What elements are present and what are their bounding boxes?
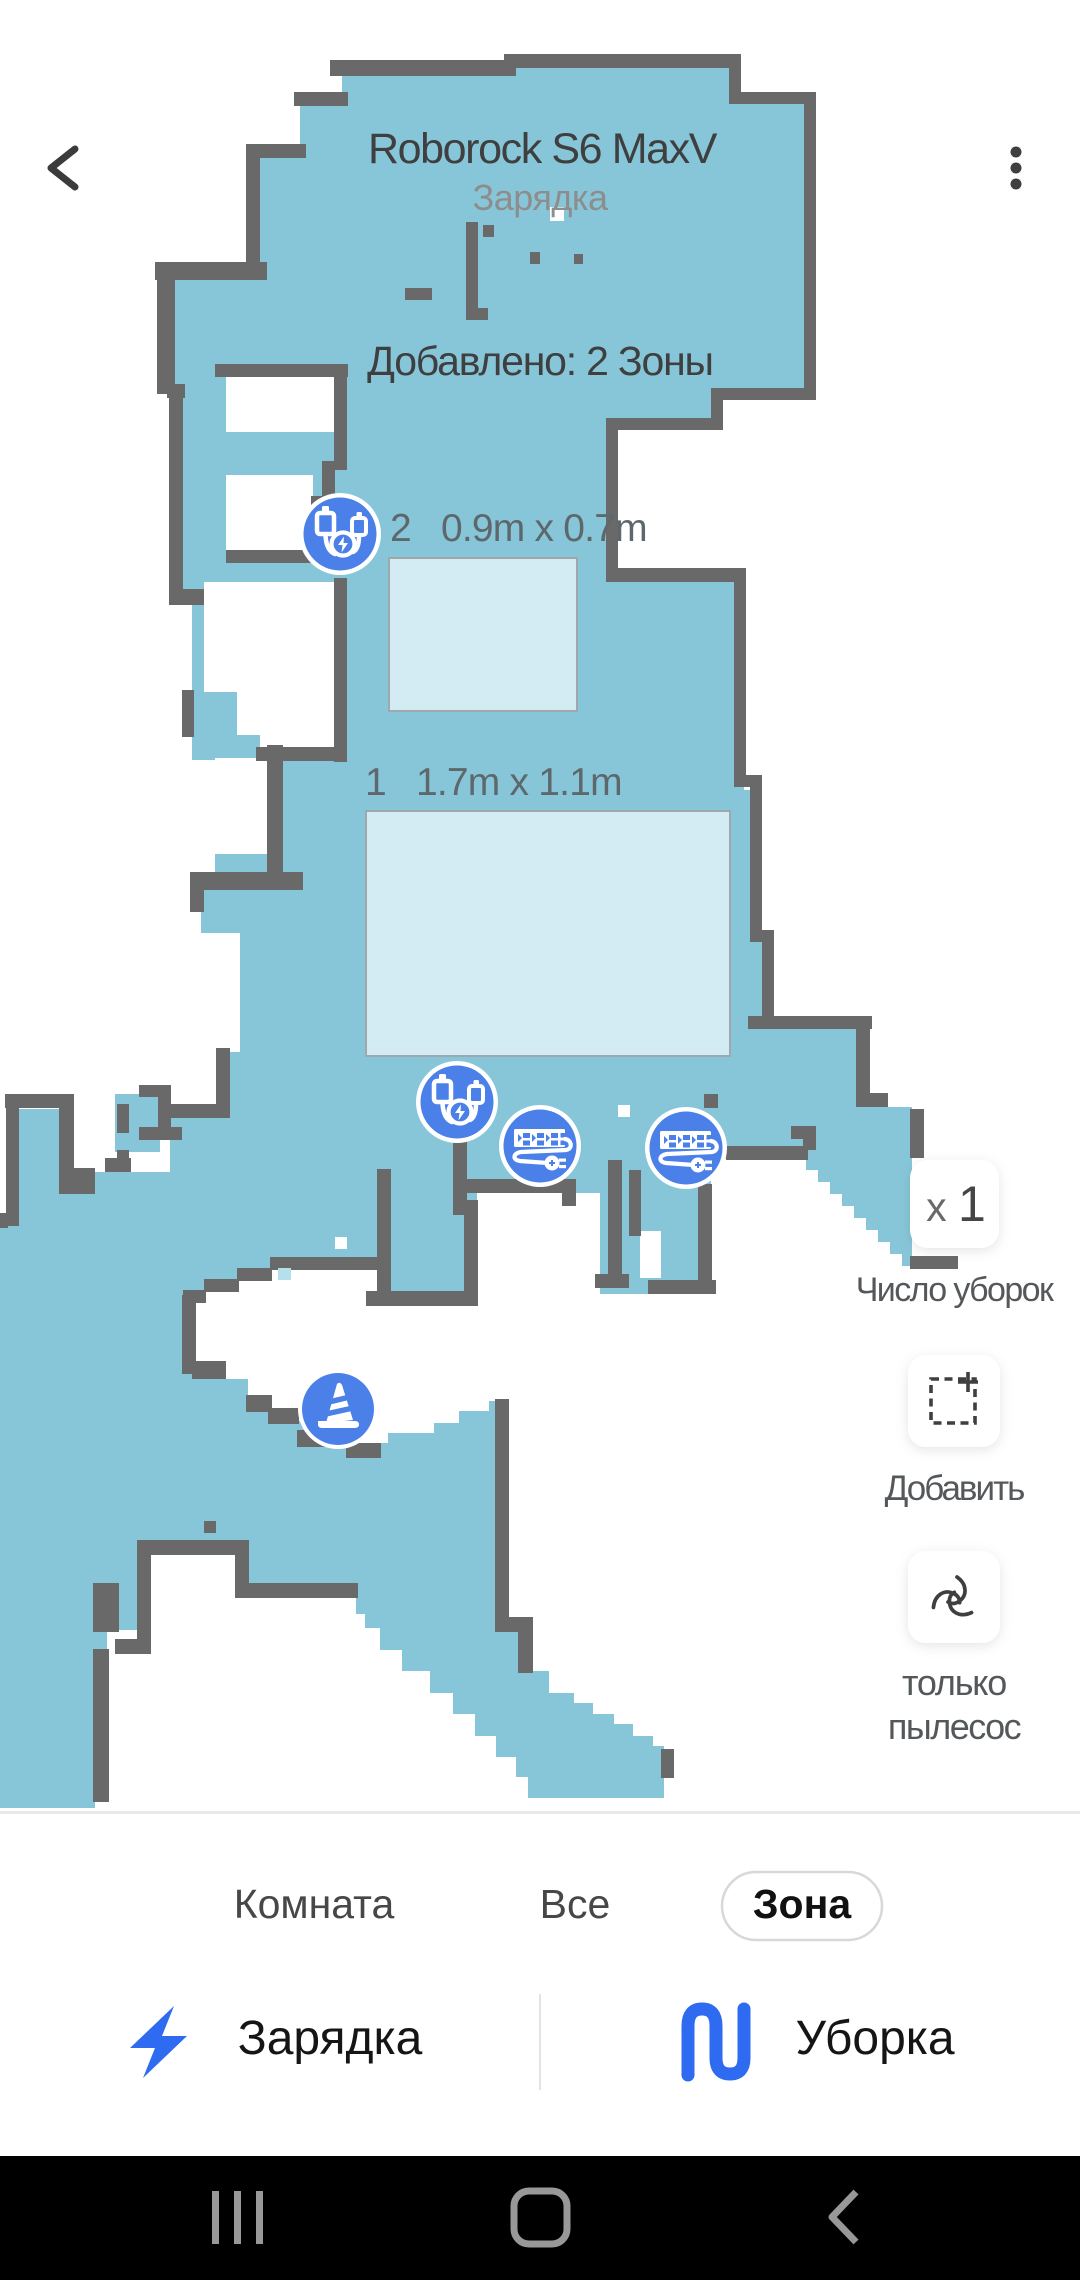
- svg-text:Добавлено: 2 Зоны: Добавлено: 2 Зоны: [367, 338, 713, 384]
- svg-text:Roborock S6 MaxV: Roborock S6 MaxV: [368, 125, 718, 173]
- svg-text:Зона: Зона: [753, 1881, 852, 1927]
- svg-text:1 1.7m x 1.1m: 1 1.7m x 1.1m: [365, 761, 622, 804]
- svg-text:Все: Все: [540, 1881, 611, 1927]
- svg-text:Зарядка: Зарядка: [473, 177, 609, 218]
- svg-text:х 1: х 1: [926, 1176, 986, 1232]
- svg-text:Комната: Комната: [234, 1881, 395, 1927]
- svg-text:пылесос: пылесос: [888, 1706, 1022, 1747]
- svg-text:Зарядка: Зарядка: [238, 2012, 423, 2065]
- svg-text:Число уборок: Число уборок: [856, 1271, 1055, 1309]
- svg-text:только: только: [902, 1662, 1006, 1703]
- svg-text:Уборка: Уборка: [795, 2012, 954, 2065]
- svg-text:2 0.9m x 0.7m: 2 0.9m x 0.7m: [390, 507, 647, 550]
- svg-text:Добавить: Добавить: [885, 1469, 1024, 1508]
